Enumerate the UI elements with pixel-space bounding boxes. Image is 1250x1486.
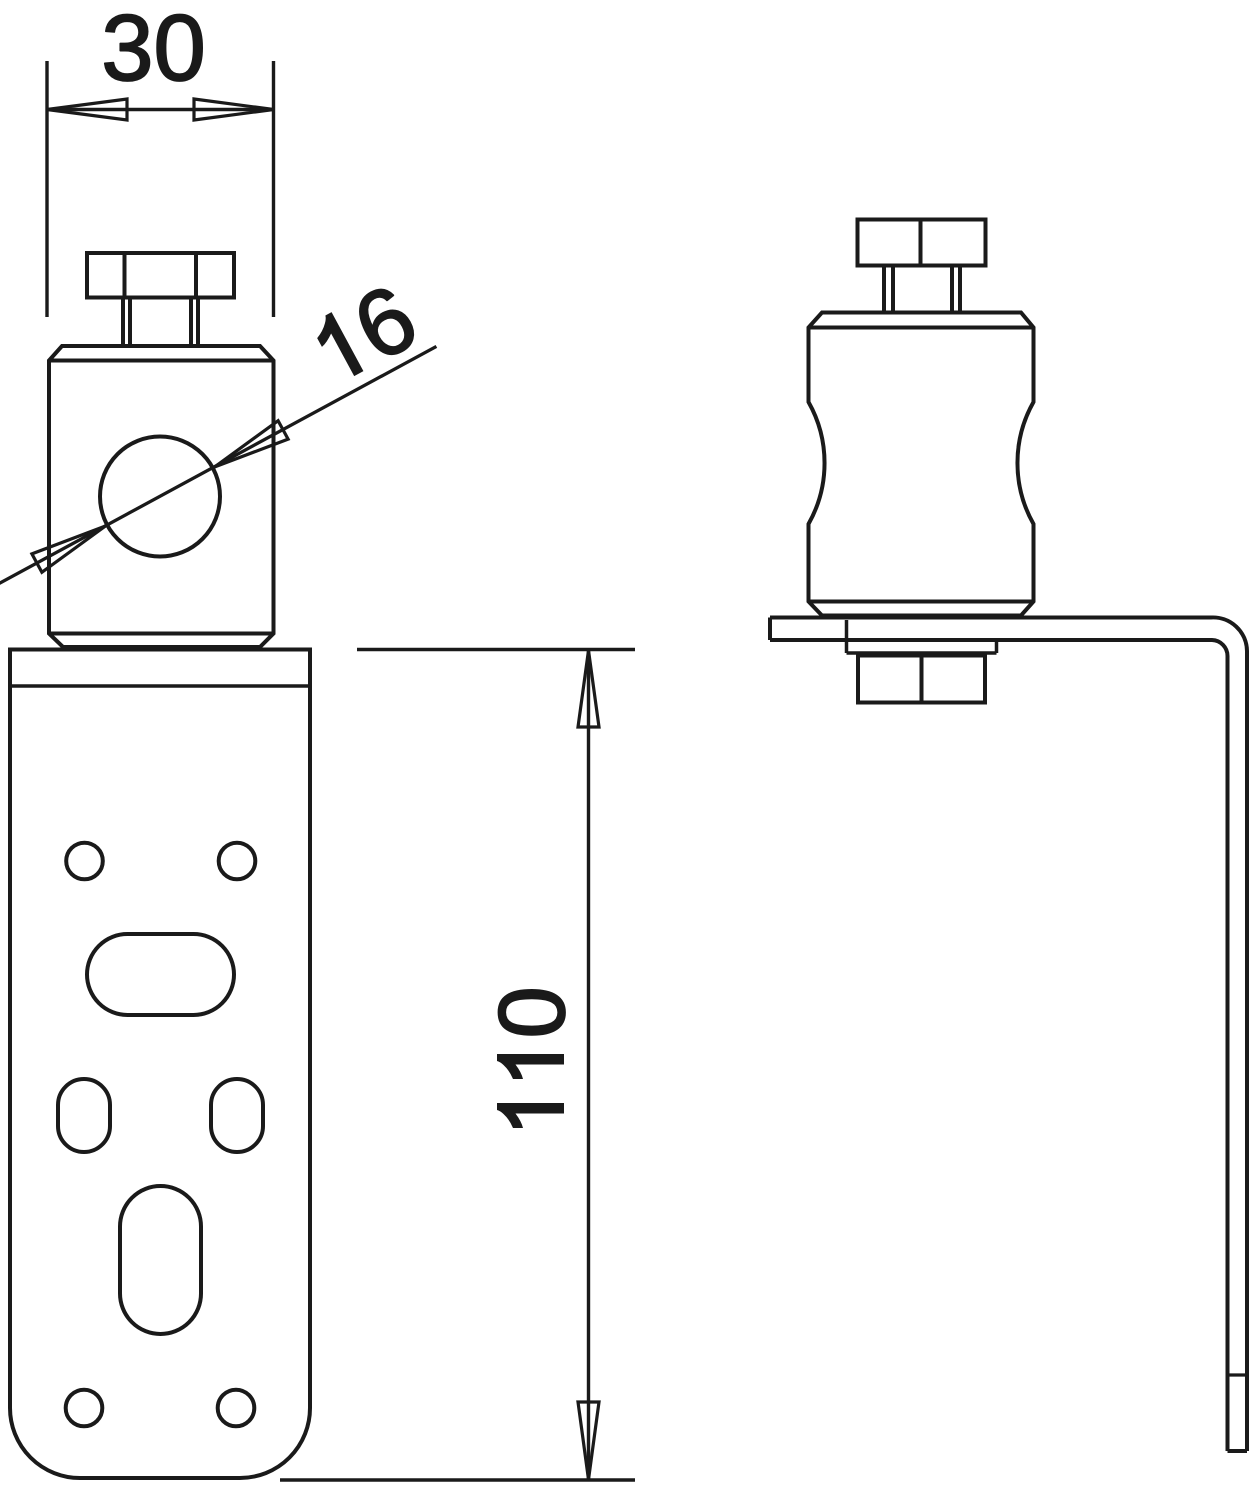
svg-text:30: 30 bbox=[101, 0, 206, 100]
svg-text:0: 0 bbox=[479, 986, 584, 1038]
